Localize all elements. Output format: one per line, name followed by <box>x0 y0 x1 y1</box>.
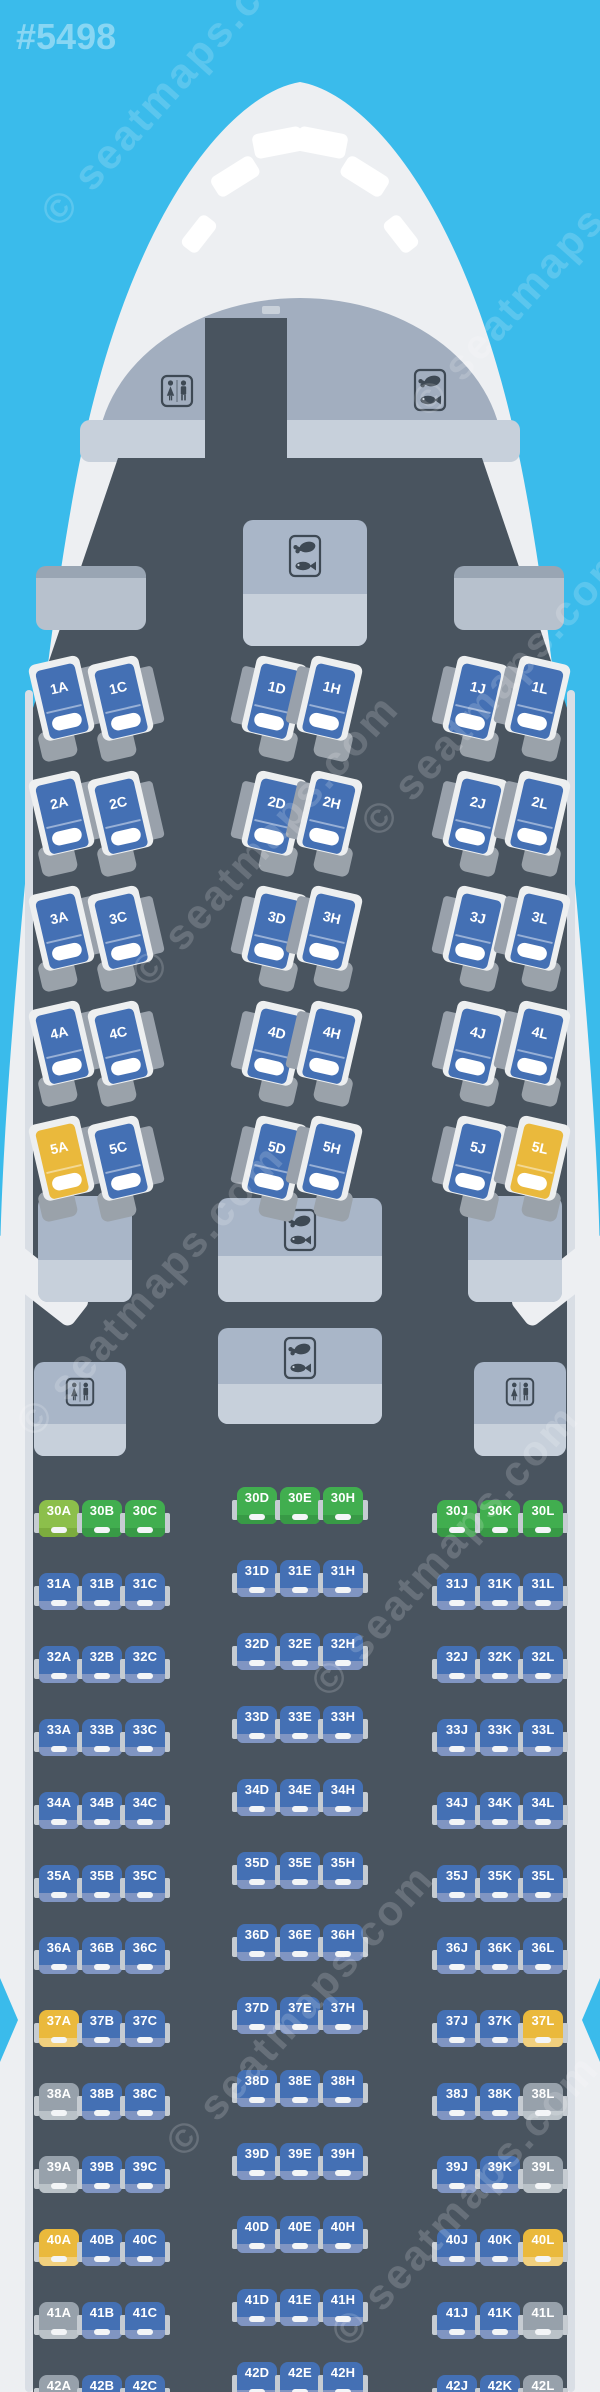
seat-pillow <box>308 826 340 846</box>
seat-38J[interactable]: 38J <box>437 2083 477 2120</box>
seat-label: 33K <box>480 1722 520 1737</box>
seat-37H[interactable]: 37H <box>323 1997 363 2034</box>
seat-pillow <box>308 941 340 961</box>
seat-label: 35C <box>125 1868 165 1883</box>
seat-38L[interactable]: 38L <box>523 2083 563 2120</box>
seat-36J[interactable]: 36J <box>437 1937 477 1974</box>
seat-label: 42K <box>480 2378 520 2392</box>
seat-38B[interactable]: 38B <box>82 2083 122 2120</box>
seat-belt-notch <box>292 1806 308 1812</box>
seat-30J[interactable]: 30J <box>437 1500 477 1537</box>
seat-label: 41A <box>39 2305 79 2320</box>
seat-belt-notch <box>492 2037 508 2043</box>
seat-42C[interactable]: 42C <box>125 2375 165 2392</box>
seat-38A[interactable]: 38A <box>39 2083 79 2120</box>
seat-40E[interactable]: 40E <box>280 2216 320 2253</box>
seat-belt-notch <box>94 1819 110 1825</box>
seat-label: 2J <box>457 790 500 815</box>
seatmap-canvas: 30A30B30C30D30E30H30J30K30L31A31B31C31D3… <box>0 0 600 2392</box>
seat-belt-notch <box>94 1527 110 1533</box>
seat-34K[interactable]: 34K <box>480 1792 520 1829</box>
seat-32K[interactable]: 32K <box>480 1646 520 1683</box>
seat-41A[interactable]: 41A <box>39 2302 79 2339</box>
seat-belt-notch <box>137 1964 153 1970</box>
seat-belt-notch <box>249 2024 265 2030</box>
seat-label: 30K <box>480 1503 520 1518</box>
seat-31C[interactable]: 31C <box>125 1573 165 1610</box>
seat-pillow <box>110 1171 142 1191</box>
seat-pillow <box>110 1056 142 1076</box>
seat-label: 31D <box>237 1563 277 1578</box>
seat-38H[interactable]: 38H <box>323 2070 363 2107</box>
seat-30K[interactable]: 30K <box>480 1500 520 1537</box>
seat-39K[interactable]: 39K <box>480 2156 520 2193</box>
seat-belt-notch <box>51 2329 67 2335</box>
seat-belt-notch <box>94 1673 110 1679</box>
seat-31K[interactable]: 31K <box>480 1573 520 1610</box>
seat-41L[interactable]: 41L <box>523 2302 563 2339</box>
seat-30E[interactable]: 30E <box>280 1487 320 1524</box>
seat-31A[interactable]: 31A <box>39 1573 79 1610</box>
seat-belt-notch <box>449 2256 465 2262</box>
seat-41B[interactable]: 41B <box>82 2302 122 2339</box>
seat-label: 40K <box>480 2232 520 2247</box>
seat-label: 38A <box>39 2086 79 2101</box>
seat-label: 37H <box>323 2000 363 2015</box>
seat-belt-notch <box>137 1819 153 1825</box>
seat-40B[interactable]: 40B <box>82 2229 122 2266</box>
seat-label: 34K <box>480 1795 520 1810</box>
seat-32H[interactable]: 32H <box>323 1633 363 1670</box>
seat-label: 39L <box>523 2159 563 2174</box>
seat-34D[interactable]: 34D <box>237 1779 277 1816</box>
seat-label: 42E <box>280 2365 320 2380</box>
seat-belt-notch <box>335 2097 351 2103</box>
seat-42A[interactable]: 42A <box>39 2375 79 2392</box>
seat-40D[interactable]: 40D <box>237 2216 277 2253</box>
seat-pillow <box>454 941 486 961</box>
seat-belt-notch <box>535 2329 551 2335</box>
seat-belt-notch <box>492 1892 508 1898</box>
seat-label: 33E <box>280 1709 320 1724</box>
lavatory-mid-right-counter <box>474 1424 566 1456</box>
seat-30H[interactable]: 30H <box>323 1487 363 1524</box>
seat-label: 40J <box>437 2232 477 2247</box>
seat-label: 1L <box>519 675 562 700</box>
stowage-mid-left-counter <box>38 1260 132 1302</box>
seat-36D[interactable]: 36D <box>237 1924 277 1961</box>
seat-belt-notch <box>535 2110 551 2116</box>
seat-pillow <box>454 1171 486 1191</box>
seat-42K[interactable]: 42K <box>480 2375 520 2392</box>
seat-belt-notch <box>492 2110 508 2116</box>
seat-belt-notch <box>292 1951 308 1957</box>
seat-belt-notch <box>535 2256 551 2262</box>
seat-31L[interactable]: 31L <box>523 1573 563 1610</box>
seat-label: 35B <box>82 1868 122 1883</box>
seat-34A[interactable]: 34A <box>39 1792 79 1829</box>
seat-36B[interactable]: 36B <box>82 1937 122 1974</box>
seat-35L[interactable]: 35L <box>523 1865 563 1902</box>
seat-belt-notch <box>249 1587 265 1593</box>
seat-42H[interactable]: 42H <box>323 2362 363 2392</box>
seat-label: 33B <box>82 1722 122 1737</box>
seat-belt-notch <box>292 2243 308 2249</box>
seat-pillow <box>516 826 548 846</box>
seat-39C[interactable]: 39C <box>125 2156 165 2193</box>
seat-label: 32D <box>237 1636 277 1651</box>
seat-33A[interactable]: 33A <box>39 1719 79 1756</box>
seat-belt-notch <box>292 2170 308 2176</box>
seat-30B[interactable]: 30B <box>82 1500 122 1537</box>
seat-35H[interactable]: 35H <box>323 1852 363 1889</box>
seat-label: 33J <box>437 1722 477 1737</box>
seat-label: 32B <box>82 1649 122 1664</box>
seat-41D[interactable]: 41D <box>237 2289 277 2326</box>
seat-pillow <box>253 941 285 961</box>
seat-belt-notch <box>249 1660 265 1666</box>
seat-label: 36H <box>323 1927 363 1942</box>
seat-label: 33C <box>125 1722 165 1737</box>
seat-belt-notch <box>335 1879 351 1885</box>
seat-label: 30J <box>437 1503 477 1518</box>
seat-42J[interactable]: 42J <box>437 2375 477 2392</box>
seat-belt-notch <box>51 1527 67 1533</box>
seat-32E[interactable]: 32E <box>280 1633 320 1670</box>
seat-belt-notch <box>335 1951 351 1957</box>
seat-34H[interactable]: 34H <box>323 1779 363 1816</box>
seat-38E[interactable]: 38E <box>280 2070 320 2107</box>
seat-38D[interactable]: 38D <box>237 2070 277 2107</box>
seat-39D[interactable]: 39D <box>237 2143 277 2180</box>
seat-belt-notch <box>51 2183 67 2189</box>
seat-33E[interactable]: 33E <box>280 1706 320 1743</box>
seat-belt-notch <box>249 1514 265 1520</box>
seat-41K[interactable]: 41K <box>480 2302 520 2339</box>
seat-label: 37C <box>125 2013 165 2028</box>
seat-belt-notch <box>137 1600 153 1606</box>
seat-label: 31H <box>323 1563 363 1578</box>
seat-35B[interactable]: 35B <box>82 1865 122 1902</box>
seat-pillow <box>516 941 548 961</box>
seat-label: 38H <box>323 2073 363 2088</box>
seat-label: 36J <box>437 1940 477 1955</box>
seat-32A[interactable]: 32A <box>39 1646 79 1683</box>
seat-label: 32K <box>480 1649 520 1664</box>
seat-label: 42J <box>437 2378 477 2392</box>
seat-pillow <box>308 711 340 731</box>
cockpit-console <box>205 318 287 460</box>
seat-30L[interactable]: 30L <box>523 1500 563 1537</box>
seat-42B[interactable]: 42B <box>82 2375 122 2392</box>
seat-39E[interactable]: 39E <box>280 2143 320 2180</box>
seat-39L[interactable]: 39L <box>523 2156 563 2193</box>
stowage-mid-right-counter <box>468 1260 562 1302</box>
seat-label: 34J <box>437 1795 477 1810</box>
seat-pillow <box>51 1056 83 1076</box>
seat-32C[interactable]: 32C <box>125 1646 165 1683</box>
seat-label: 40A <box>39 2232 79 2247</box>
seat-33J[interactable]: 33J <box>437 1719 477 1756</box>
seat-belt-notch <box>94 2183 110 2189</box>
seat-39H[interactable]: 39H <box>323 2143 363 2180</box>
seat-belt-notch <box>449 1600 465 1606</box>
lavatory-mid-left-counter <box>34 1424 126 1456</box>
seat-belt-notch <box>492 1673 508 1679</box>
seat-label: 37A <box>39 2013 79 2028</box>
seat-label: 37D <box>237 2000 277 2015</box>
seat-37B[interactable]: 37B <box>82 2010 122 2047</box>
bulkhead-band <box>80 420 520 462</box>
seat-belt-notch <box>449 2329 465 2335</box>
seat-35E[interactable]: 35E <box>280 1852 320 1889</box>
seat-belt-notch <box>449 1746 465 1752</box>
seat-belt-notch <box>492 1964 508 1970</box>
seat-pillow <box>253 1056 285 1076</box>
seat-41C[interactable]: 41C <box>125 2302 165 2339</box>
seat-label: 34E <box>280 1782 320 1797</box>
seat-36L[interactable]: 36L <box>523 1937 563 1974</box>
seat-label: 31E <box>280 1563 320 1578</box>
seat-belt-notch <box>249 2097 265 2103</box>
seat-pillow <box>516 1171 548 1191</box>
seat-33K[interactable]: 33K <box>480 1719 520 1756</box>
seat-pillow <box>454 1056 486 1076</box>
seat-37J[interactable]: 37J <box>437 2010 477 2047</box>
seat-31E[interactable]: 31E <box>280 1560 320 1597</box>
seat-belt-notch <box>94 2110 110 2116</box>
seat-belt-notch <box>449 2183 465 2189</box>
seat-label: 37K <box>480 2013 520 2028</box>
seat-label: 38L <box>523 2086 563 2101</box>
seat-35D[interactable]: 35D <box>237 1852 277 1889</box>
seat-33C[interactable]: 33C <box>125 1719 165 1756</box>
seat-42E[interactable]: 42E <box>280 2362 320 2392</box>
seat-belt-notch <box>335 2243 351 2249</box>
seat-31J[interactable]: 31J <box>437 1573 477 1610</box>
seat-label: 33H <box>323 1709 363 1724</box>
seat-label: 35A <box>39 1868 79 1883</box>
seat-belt-notch <box>137 2037 153 2043</box>
sidewall-lining-left <box>25 690 33 2392</box>
seat-40H[interactable]: 40H <box>323 2216 363 2253</box>
seat-label: 3L <box>519 905 562 930</box>
seat-belt-notch <box>94 2256 110 2262</box>
lavatory-icon <box>65 1377 95 1407</box>
seat-belt-notch <box>492 1746 508 1752</box>
seat-40L[interactable]: 40L <box>523 2229 563 2266</box>
seat-42L[interactable]: 42L <box>523 2375 563 2392</box>
seat-label: 30H <box>323 1490 363 1505</box>
seat-belt-notch <box>335 2316 351 2322</box>
seat-41E[interactable]: 41E <box>280 2289 320 2326</box>
seat-belt-notch <box>449 1527 465 1533</box>
seat-label: 37B <box>82 2013 122 2028</box>
seat-37E[interactable]: 37E <box>280 1997 320 2034</box>
seat-37L[interactable]: 37L <box>523 2010 563 2047</box>
seat-belt-notch <box>137 1892 153 1898</box>
seat-belt-notch <box>335 1806 351 1812</box>
seat-label: 41D <box>237 2292 277 2307</box>
seat-38C[interactable]: 38C <box>125 2083 165 2120</box>
sidewall-lining-right <box>567 690 575 2392</box>
seat-34J[interactable]: 34J <box>437 1792 477 1829</box>
seat-label: 36A <box>39 1940 79 1955</box>
seat-label: 33L <box>523 1722 563 1737</box>
seat-label: 39K <box>480 2159 520 2174</box>
seat-label: 30E <box>280 1490 320 1505</box>
seat-label: 5C <box>97 1135 140 1160</box>
seat-35J[interactable]: 35J <box>437 1865 477 1902</box>
seat-label: 5A <box>38 1135 81 1160</box>
seat-37D[interactable]: 37D <box>237 1997 277 2034</box>
seat-40J[interactable]: 40J <box>437 2229 477 2266</box>
seat-belt-notch <box>51 1892 67 1898</box>
seat-39J[interactable]: 39J <box>437 2156 477 2193</box>
seat-36H[interactable]: 36H <box>323 1924 363 1961</box>
seat-label: 41B <box>82 2305 122 2320</box>
seat-belt-notch <box>249 2316 265 2322</box>
seat-36C[interactable]: 36C <box>125 1937 165 1974</box>
seat-belt-notch <box>249 1806 265 1812</box>
seat-belt-notch <box>492 2183 508 2189</box>
seat-label: 31C <box>125 1576 165 1591</box>
seat-40A[interactable]: 40A <box>39 2229 79 2266</box>
seat-35K[interactable]: 35K <box>480 1865 520 1902</box>
seat-30D[interactable]: 30D <box>237 1487 277 1524</box>
seat-belt-notch <box>51 2110 67 2116</box>
galley-mid-1-counter <box>218 1256 382 1302</box>
seat-pillow <box>110 826 142 846</box>
seat-41H[interactable]: 41H <box>323 2289 363 2326</box>
seat-belt-notch <box>51 1673 67 1679</box>
seat-belt-notch <box>335 1587 351 1593</box>
seat-label: 41H <box>323 2292 363 2307</box>
seat-belt-notch <box>492 1527 508 1533</box>
seat-33H[interactable]: 33H <box>323 1706 363 1743</box>
seat-belt-notch <box>51 2037 67 2043</box>
seat-30C[interactable]: 30C <box>125 1500 165 1537</box>
seat-label: 34A <box>39 1795 79 1810</box>
seat-32L[interactable]: 32L <box>523 1646 563 1683</box>
seat-label: 31L <box>523 1576 563 1591</box>
seat-label: 41K <box>480 2305 520 2320</box>
seat-label: 30B <box>82 1503 122 1518</box>
seat-label: 36E <box>280 1927 320 1942</box>
seat-label: 1C <box>97 675 140 700</box>
seat-belt-notch <box>249 2243 265 2249</box>
seat-label: 30C <box>125 1503 165 1518</box>
seat-belt-notch <box>94 1964 110 1970</box>
seat-label: 38E <box>280 2073 320 2088</box>
seat-belt-notch <box>137 2256 153 2262</box>
seat-33D[interactable]: 33D <box>237 1706 277 1743</box>
seat-label: 1A <box>38 675 81 700</box>
seat-37C[interactable]: 37C <box>125 2010 165 2047</box>
seat-pillow <box>253 711 285 731</box>
seat-40C[interactable]: 40C <box>125 2229 165 2266</box>
seat-34E[interactable]: 34E <box>280 1779 320 1816</box>
seat-39A[interactable]: 39A <box>39 2156 79 2193</box>
seat-label: 37L <box>523 2013 563 2028</box>
seat-32D[interactable]: 32D <box>237 1633 277 1670</box>
seat-31B[interactable]: 31B <box>82 1573 122 1610</box>
seat-belt-notch <box>492 1600 508 1606</box>
seat-33L[interactable]: 33L <box>523 1719 563 1756</box>
seat-33B[interactable]: 33B <box>82 1719 122 1756</box>
seat-36K[interactable]: 36K <box>480 1937 520 1974</box>
seat-belt-notch <box>137 1673 153 1679</box>
seat-belt-notch <box>335 1514 351 1520</box>
seat-pillow <box>253 1171 285 1191</box>
seat-belt-notch <box>94 2329 110 2335</box>
seat-label: 33A <box>39 1722 79 1737</box>
seat-35A[interactable]: 35A <box>39 1865 79 1902</box>
seat-42D[interactable]: 42D <box>237 2362 277 2392</box>
seat-39B[interactable]: 39B <box>82 2156 122 2193</box>
seat-37A[interactable]: 37A <box>39 2010 79 2047</box>
seat-label: 37J <box>437 2013 477 2028</box>
seat-34B[interactable]: 34B <box>82 1792 122 1829</box>
seat-label: 39D <box>237 2146 277 2161</box>
seat-belt-notch <box>335 2024 351 2030</box>
seat-38K[interactable]: 38K <box>480 2083 520 2120</box>
seat-belt-notch <box>449 2110 465 2116</box>
seat-36E[interactable]: 36E <box>280 1924 320 1961</box>
seat-belt-notch <box>94 1892 110 1898</box>
seat-40K[interactable]: 40K <box>480 2229 520 2266</box>
seat-34L[interactable]: 34L <box>523 1792 563 1829</box>
seat-label: 2C <box>97 790 140 815</box>
seat-belt-notch <box>449 1819 465 1825</box>
seat-label: 35L <box>523 1868 563 1883</box>
seat-31H[interactable]: 31H <box>323 1560 363 1597</box>
seat-label: 38C <box>125 2086 165 2101</box>
seat-35C[interactable]: 35C <box>125 1865 165 1902</box>
seat-label: 42C <box>125 2378 165 2392</box>
seat-label: 34D <box>237 1782 277 1797</box>
seat-belt-notch <box>94 1600 110 1606</box>
seat-pillow <box>253 826 285 846</box>
seat-label: 42D <box>237 2365 277 2380</box>
seat-belt-notch <box>449 2037 465 2043</box>
seat-label: 39A <box>39 2159 79 2174</box>
seat-label: 30A <box>39 1503 79 1518</box>
seat-belt-notch <box>535 1964 551 1970</box>
seat-label: 5H <box>311 1135 354 1160</box>
seat-label: 4H <box>311 1020 354 1045</box>
seat-32B[interactable]: 32B <box>82 1646 122 1683</box>
seat-32J[interactable]: 32J <box>437 1646 477 1683</box>
seat-pillow <box>110 941 142 961</box>
seat-belt-notch <box>51 1819 67 1825</box>
seat-31D[interactable]: 31D <box>237 1560 277 1597</box>
seat-belt-notch <box>449 1964 465 1970</box>
seat-30A[interactable]: 30A <box>39 1500 79 1537</box>
seat-41J[interactable]: 41J <box>437 2302 477 2339</box>
seat-belt-notch <box>249 2170 265 2176</box>
seat-label: 40D <box>237 2219 277 2234</box>
seat-37K[interactable]: 37K <box>480 2010 520 2047</box>
seat-label: 2L <box>519 790 562 815</box>
seat-34C[interactable]: 34C <box>125 1792 165 1829</box>
seat-label: 39E <box>280 2146 320 2161</box>
seat-36A[interactable]: 36A <box>39 1937 79 1974</box>
seat-belt-notch <box>137 1527 153 1533</box>
seat-label: 31B <box>82 1576 122 1591</box>
seat-label: 35K <box>480 1868 520 1883</box>
seat-label: 35H <box>323 1855 363 1870</box>
